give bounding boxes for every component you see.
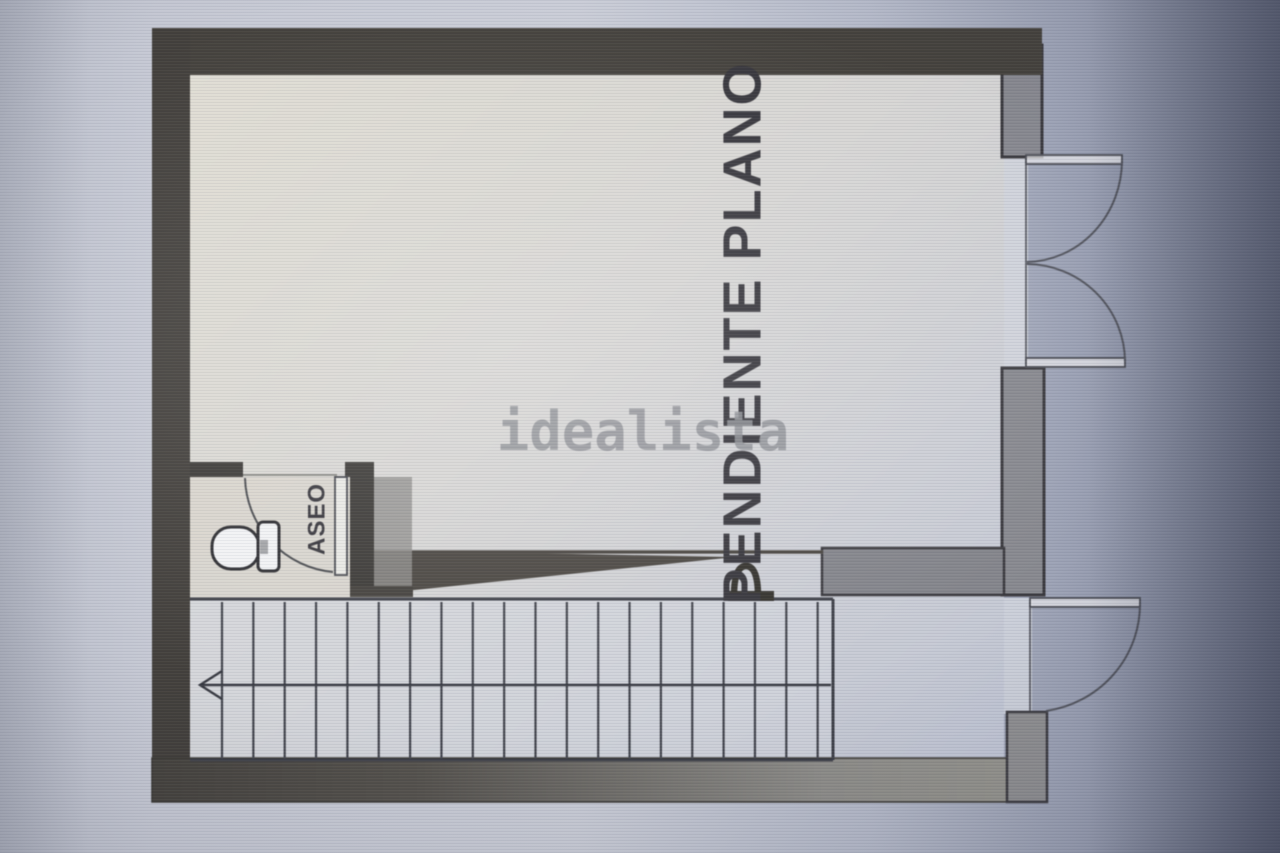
bottom-right-corner-wall	[1007, 712, 1047, 802]
toilet-flush-icon	[260, 540, 268, 554]
double-door-leaf-top	[1026, 155, 1122, 164]
toilet-bowl-icon	[212, 527, 259, 569]
floor-plan-photo: ASEO PENDIENTE PLANO idealista	[0, 0, 1280, 853]
bottom-wall	[152, 758, 1047, 802]
single-door-leaf	[1030, 598, 1140, 607]
floor-plan: ASEO PENDIENTE PLANO idealista	[0, 0, 1280, 853]
wall-shadow-band	[374, 477, 412, 588]
bathroom-label: ASEO	[303, 483, 330, 555]
entrance-double-door	[1026, 155, 1125, 367]
bathroom-top-wall-stub	[190, 462, 243, 477]
double-door-opening-floor	[1004, 156, 1028, 368]
idealista-watermark: idealista	[497, 400, 790, 463]
interior-wall-right	[822, 548, 1004, 595]
double-door-swing-top	[1027, 160, 1122, 262]
top-wall	[152, 28, 1042, 75]
stairs-floor	[190, 600, 833, 761]
lower-single-door	[1030, 598, 1140, 711]
bathroom-fixtures	[212, 522, 279, 571]
double-door-swing-bottom	[1027, 264, 1125, 362]
single-door-swing	[1046, 603, 1140, 711]
bathroom-wall-foot	[350, 586, 413, 597]
double-door-leaf-bottom	[1026, 358, 1125, 367]
single-door-opening-floor	[1004, 598, 1032, 714]
bathroom-door-leaf	[335, 477, 347, 575]
area-label: PENDIENTE PLANO	[712, 61, 772, 604]
right-wall-pillar	[1002, 368, 1044, 595]
left-wall	[152, 28, 190, 802]
bathroom-right-wall	[350, 462, 374, 593]
